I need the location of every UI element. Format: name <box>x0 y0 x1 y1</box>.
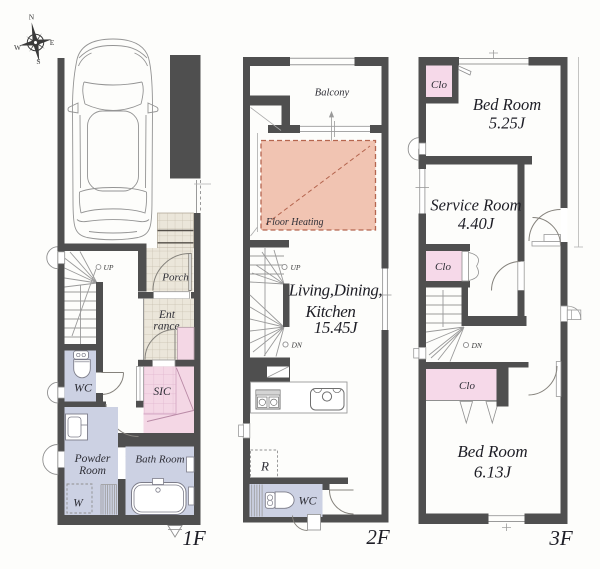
svg-text:5.25J: 5.25J <box>489 114 526 133</box>
svg-text:Clo: Clo <box>435 261 451 273</box>
svg-text:Powder: Powder <box>74 453 111 465</box>
svg-text:Service Room: Service Room <box>430 196 521 215</box>
svg-text:4.40J: 4.40J <box>458 214 495 233</box>
svg-text:Clo: Clo <box>459 380 475 392</box>
svg-text:Balcony: Balcony <box>315 88 350 99</box>
svg-text:UP: UP <box>104 263 114 272</box>
svg-text:Room: Room <box>78 465 106 477</box>
svg-text:2F: 2F <box>366 525 390 549</box>
svg-text:Bed Room: Bed Room <box>473 95 541 114</box>
svg-text:3F: 3F <box>548 526 573 550</box>
svg-text:Porch: Porch <box>161 272 189 284</box>
svg-text:Ent: Ent <box>158 309 176 321</box>
svg-text:N: N <box>29 13 35 22</box>
svg-text:15.45J: 15.45J <box>314 318 359 337</box>
svg-text:WC: WC <box>74 381 93 395</box>
svg-text:WC: WC <box>299 494 318 508</box>
svg-text:DN: DN <box>471 341 483 350</box>
svg-text:DN: DN <box>291 341 303 350</box>
svg-text:UP: UP <box>291 263 301 272</box>
svg-text:E: E <box>50 38 55 47</box>
svg-text:Bath Room: Bath Room <box>135 454 184 466</box>
svg-text:S: S <box>36 57 40 66</box>
svg-text:Clo: Clo <box>431 79 447 91</box>
svg-text:W: W <box>14 43 22 52</box>
svg-text:W: W <box>73 498 84 510</box>
svg-text:Floor Heating: Floor Heating <box>265 217 324 228</box>
svg-text:R: R <box>260 459 269 474</box>
svg-text:Living,Dining,: Living,Dining, <box>288 281 383 300</box>
svg-text:1F: 1F <box>182 526 206 550</box>
svg-text:Bed Room: Bed Room <box>457 442 527 461</box>
svg-text:6.13J: 6.13J <box>474 463 513 482</box>
svg-text:SIC: SIC <box>153 386 171 398</box>
